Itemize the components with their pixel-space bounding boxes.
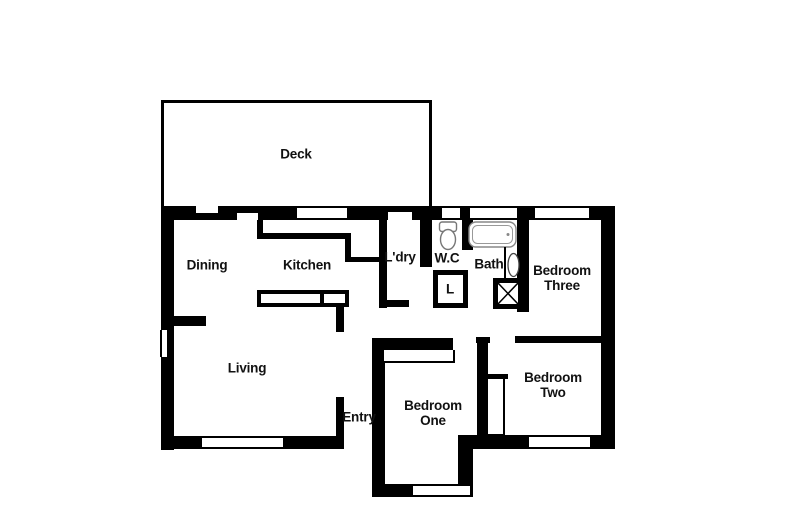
wc-window	[442, 206, 460, 220]
room-label-linen: L	[446, 281, 454, 296]
living-window	[202, 436, 283, 449]
room-label-bedroom-one: Bedroom One	[404, 398, 462, 428]
kitchen-bench-icon	[257, 290, 349, 307]
wall-east	[601, 206, 615, 449]
kitchen-bench-divider	[320, 290, 324, 307]
room-label-entry: Entry	[342, 409, 376, 424]
room-label-wc: W.C	[435, 250, 460, 265]
room-label-kitchen: Kitchen	[283, 257, 331, 272]
bath-window	[470, 206, 517, 220]
room-label-bedroom-two: Bedroom Two	[524, 370, 582, 400]
toilet-icon	[437, 221, 459, 251]
kitchen-counter-seg4	[345, 257, 380, 262]
wall-west	[161, 206, 174, 450]
wall-wc-west	[420, 220, 432, 267]
dining-door-opening	[237, 213, 258, 220]
room-label-laundry: L'dry	[384, 249, 415, 264]
wall-bedroom-two-west	[477, 343, 488, 437]
living-side-window	[160, 330, 169, 357]
kitchen-counter-seg2	[257, 233, 350, 239]
room-label-deck: Deck	[280, 146, 311, 161]
wall-bedroom-three-two-divider	[515, 336, 604, 343]
room-label-living: Living	[228, 360, 267, 375]
room-label-bedroom-three: Bedroom Three	[533, 263, 591, 293]
room-label-bath: Bath	[474, 256, 503, 271]
closet-bottom-line	[488, 434, 505, 436]
wall-dining-living-divider	[174, 316, 206, 326]
shower-icon	[493, 278, 523, 309]
wall-laundry-south	[379, 300, 409, 307]
closet-top-wall	[488, 374, 508, 379]
wardrobe-icon	[382, 350, 455, 363]
room-label-dining: Dining	[187, 257, 228, 272]
laundry-opening	[388, 212, 412, 220]
bedroom-one-window	[413, 484, 470, 497]
basin-icon	[506, 252, 521, 278]
bedroom-three-window	[535, 206, 589, 220]
closet-icon	[503, 379, 505, 436]
wall-bedroom-one-north	[372, 338, 453, 350]
deck-door-opening	[196, 206, 218, 213]
bedroom-two-window	[529, 435, 590, 449]
wall-kitchen-living-stub	[336, 306, 344, 332]
kitchen-window	[297, 206, 347, 220]
bathtub-icon	[468, 221, 518, 248]
floor-plan-canvas: Deck Dining Kitchen L'dry W.C Bath L Liv…	[0, 0, 790, 527]
